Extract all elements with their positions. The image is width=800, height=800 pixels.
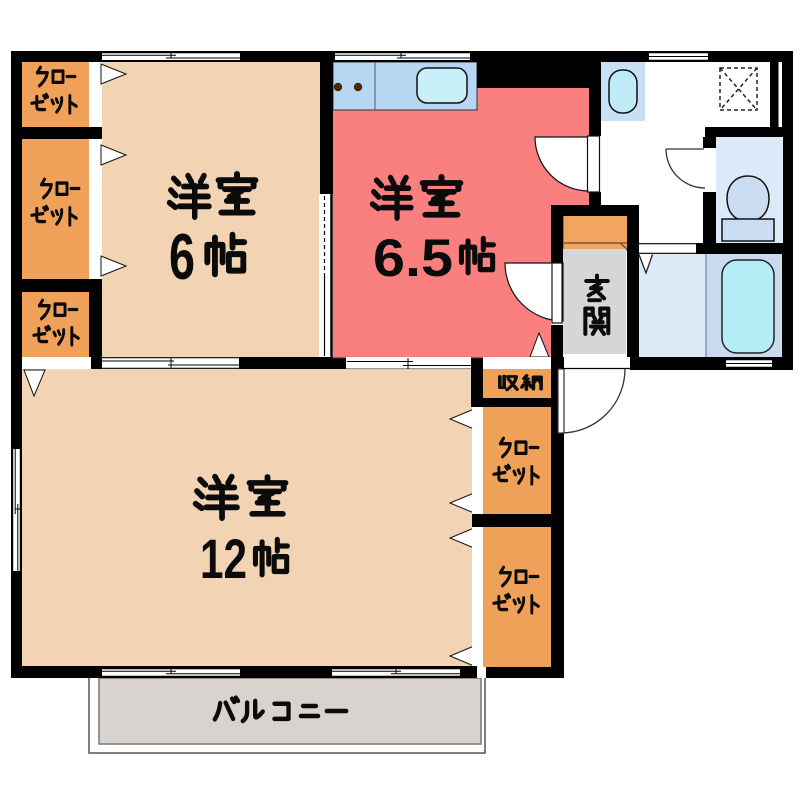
svg-text:6: 6 — [169, 220, 195, 293]
svg-text:6.5: 6.5 — [373, 229, 453, 288]
svg-text:12: 12 — [200, 527, 247, 590]
